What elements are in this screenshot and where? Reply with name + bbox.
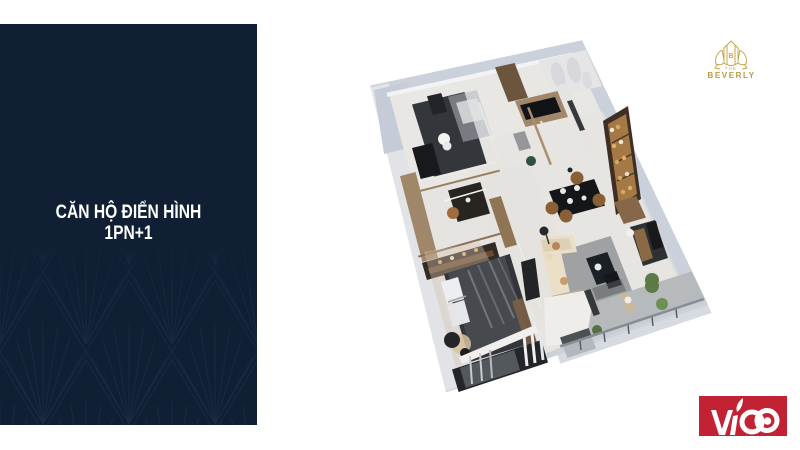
- svg-text:B: B: [728, 53, 733, 60]
- svg-text:BEVERLY: BEVERLY: [707, 71, 755, 80]
